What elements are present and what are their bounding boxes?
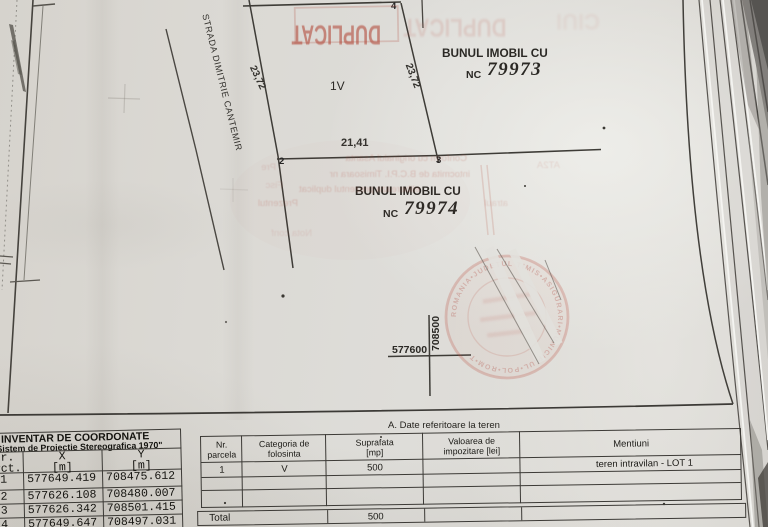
svg-text:AT2A: AT2A — [536, 160, 560, 171]
svg-text:atraul: atraul — [484, 198, 508, 209]
